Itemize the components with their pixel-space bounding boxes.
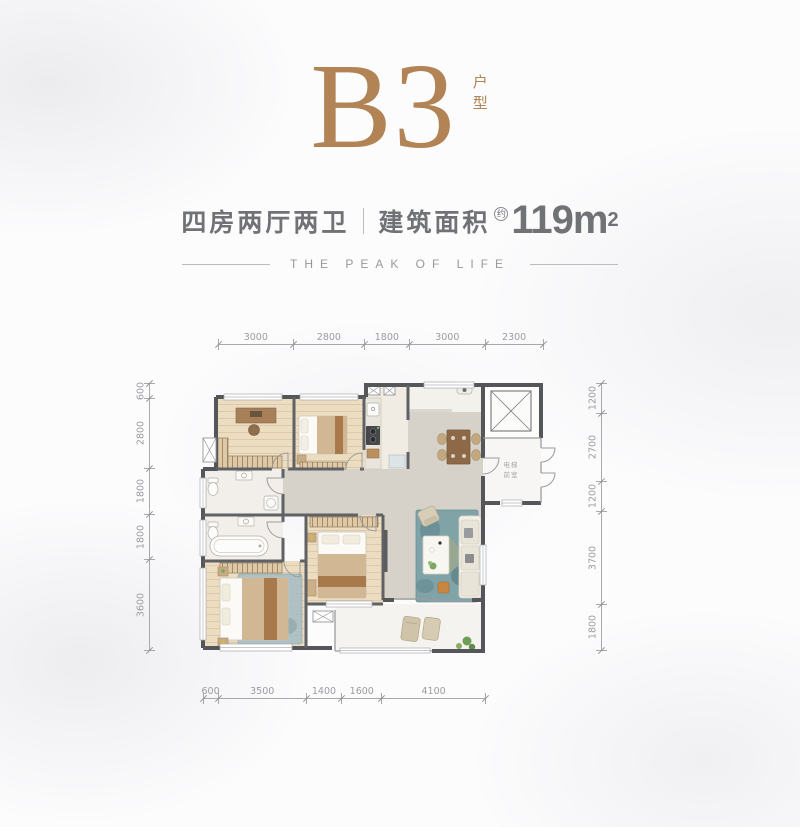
stool bbox=[438, 582, 449, 593]
approx-badge: 约 bbox=[494, 207, 508, 221]
fridge bbox=[389, 455, 405, 468]
lobby-floor bbox=[483, 438, 541, 503]
dining-chair bbox=[472, 434, 481, 445]
tagline-line-right bbox=[530, 264, 618, 265]
dim-label: 2300 bbox=[502, 332, 526, 343]
dim-label: 2800 bbox=[136, 421, 147, 445]
bookshelf bbox=[218, 438, 228, 468]
dim-label: 1800 bbox=[375, 332, 399, 343]
tagline-row: THE PEAK OF LIFE bbox=[0, 257, 800, 271]
bench bbox=[307, 580, 316, 596]
area-label: 建筑面积 bbox=[378, 203, 490, 239]
dim-label: 1800 bbox=[136, 479, 147, 503]
coffee-machine bbox=[367, 449, 379, 458]
balcony-plant bbox=[463, 637, 472, 646]
spec-row: 四房两厅两卫 建筑面积 约 119m 2 bbox=[0, 198, 800, 243]
kitchen-sink bbox=[367, 403, 379, 416]
lobby-label: 前室 bbox=[504, 470, 519, 479]
vanity bbox=[238, 517, 254, 526]
unit-type-label: 户型 bbox=[469, 74, 490, 116]
tv bbox=[384, 530, 388, 572]
dim-label: 2800 bbox=[317, 332, 341, 343]
shoe-cabinet bbox=[410, 409, 452, 412]
header: B3 户型 四房两厅两卫 建筑面积 约 119m 2 THE PEAK OF L… bbox=[0, 0, 800, 271]
dining-chair bbox=[438, 450, 447, 461]
toilet bbox=[208, 483, 218, 496]
wardrobe bbox=[310, 517, 378, 527]
dining-chair bbox=[438, 434, 447, 445]
balcony-plant bbox=[456, 643, 462, 649]
wardrobe bbox=[220, 563, 282, 573]
floor-plan: 电梯 前室 bbox=[180, 370, 600, 700]
floorplan-page: B3 户型 四房两厅两卫 建筑面积 约 119m 2 THE PEAK OF L… bbox=[0, 0, 800, 827]
vanity bbox=[236, 471, 252, 480]
plan-title: B3 户型 bbox=[0, 52, 800, 184]
plan-code: B3 bbox=[310, 52, 456, 162]
desk-chair bbox=[249, 425, 260, 436]
dim-label: 1800 bbox=[136, 525, 147, 549]
area-superscript: 2 bbox=[608, 209, 619, 232]
dim-chain-top: 30002800180030002300 bbox=[218, 334, 543, 354]
dining-table bbox=[447, 430, 470, 464]
dim-chain-left: 6002800180018003600 bbox=[139, 383, 159, 650]
spec-divider bbox=[363, 208, 364, 234]
coffee-table bbox=[423, 536, 449, 574]
tagline: THE PEAK OF LIFE bbox=[290, 257, 510, 271]
sofa bbox=[459, 516, 481, 598]
lobby-door bbox=[541, 473, 555, 487]
room-spec: 四房两厅两卫 bbox=[181, 203, 349, 239]
dim-label: 3000 bbox=[435, 332, 459, 343]
lobby-label: 电梯 bbox=[504, 460, 519, 469]
lobby-door bbox=[541, 448, 555, 462]
tagline-line-left bbox=[182, 264, 270, 265]
dim-label: 3000 bbox=[244, 332, 268, 343]
dim-label: 3600 bbox=[136, 593, 147, 617]
elevator bbox=[491, 391, 531, 431]
area-value: 119m bbox=[511, 198, 607, 243]
dining-chair bbox=[472, 450, 481, 461]
